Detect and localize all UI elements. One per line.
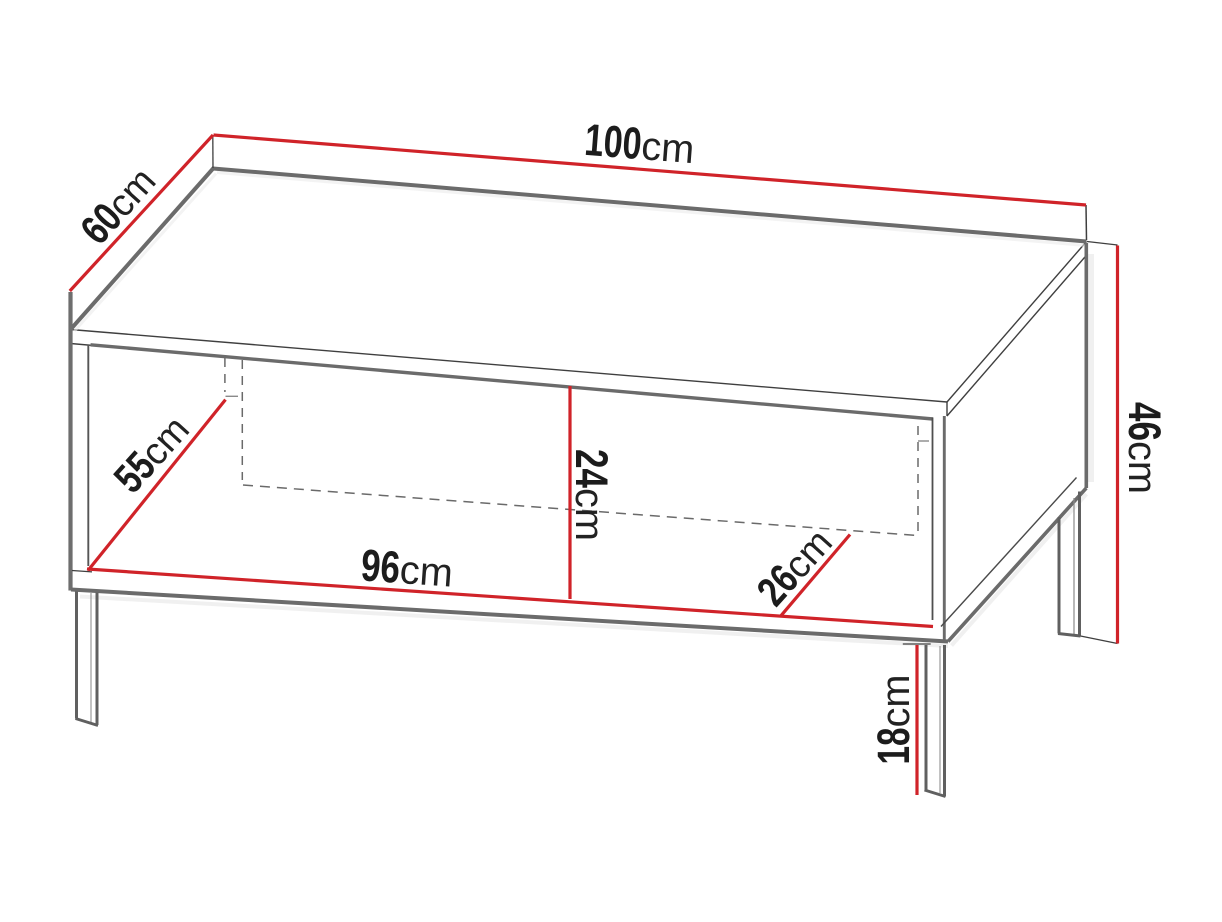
svg-text:46cm: 46cm (1119, 402, 1170, 494)
svg-text:18cm: 18cm (868, 675, 919, 765)
svg-text:24cm: 24cm (566, 449, 617, 541)
